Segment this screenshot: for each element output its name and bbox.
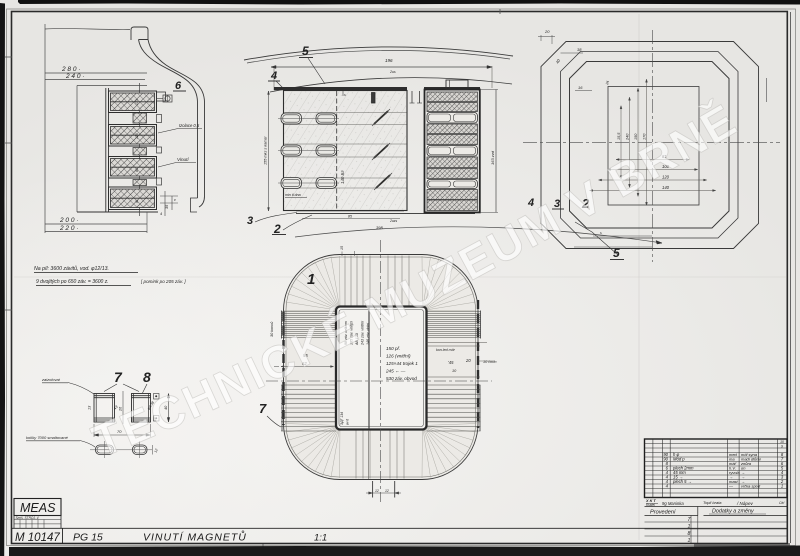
svg-text:8: 8: [688, 531, 691, 537]
svg-text:398: 398: [376, 225, 383, 230]
svg-text:Na píl: 3600 závitů, vod. φ12/: Na píl: 3600 závitů, vod. φ12/13.: [34, 265, 109, 272]
svg-text:155 mks s kamsí: 155 mks s kamsí: [264, 136, 268, 165]
svg-text:2uzs: 2uzs: [389, 219, 397, 223]
svg-text:/ Nápev: / Nápev: [736, 501, 754, 506]
svg-text:240: 240: [626, 133, 630, 141]
svg-text:16: 16: [578, 85, 583, 90]
svg-text:Dodatky a změny: Dodatky a změny: [712, 509, 754, 515]
svg-text:4: 4: [160, 212, 162, 216]
svg-text:ЭДГ 134: ЭДГ 134: [340, 412, 344, 425]
svg-text:1: 1: [307, 271, 315, 288]
svg-text:530 záv. obvod: 530 záv. obvod: [386, 376, 417, 381]
svg-text:15: 15: [340, 246, 344, 250]
svg-text:30 konců: 30 konců: [270, 321, 274, 337]
svg-text:9: 9: [781, 445, 783, 449]
svg-text:5: 5: [302, 44, 309, 58]
svg-text:M 10147: M 10147: [15, 532, 60, 544]
svg-text:Smíš. STROJ. 4: Smíš. STROJ. 4: [16, 516, 39, 520]
svg-text:víčka spod: víčka spod: [741, 484, 761, 489]
svg-text:196: 196: [385, 58, 393, 63]
svg-text:38: 38: [577, 47, 582, 52]
svg-text:85: 85: [135, 168, 139, 172]
svg-text:вч 6: вч 6: [346, 419, 350, 425]
svg-text:8: 8: [143, 369, 151, 385]
svg-text:9g Maninka: 9g Maninka: [662, 501, 684, 506]
svg-text:10 čmín: 10 čmín: [483, 360, 497, 364]
svg-text:Provedení: Provedení: [650, 510, 676, 516]
svg-text:10: 10: [780, 440, 784, 444]
svg-text:PG 15: PG 15: [73, 532, 103, 544]
svg-text:6: 6: [175, 80, 182, 92]
svg-text:kon.led mítr: kon.led mítr: [436, 348, 456, 352]
svg-text:85: 85: [348, 215, 352, 219]
svg-text:20: 20: [544, 29, 550, 34]
svg-text:1:1: 1:1: [314, 533, 327, 544]
svg-text:Vinutí: Vinutí: [177, 157, 189, 162]
svg-text:[ pomink po 205 záv. ]: [ pomink po 205 záv. ]: [140, 279, 186, 284]
svg-text:2 4 0 ·: 2 4 0 ·: [65, 73, 84, 80]
svg-text:Mód p: Mód p: [673, 457, 685, 462]
svg-text:Topil brata: Topil brata: [703, 500, 722, 505]
svg-text:Izolace 0,5: Izolace 0,5: [179, 123, 200, 128]
svg-text:125×44 trojek 1: 125×44 trojek 1: [386, 361, 418, 366]
svg-text:2 8 0 ·: 2 8 0 ·: [61, 66, 80, 73]
svg-text:245 ← —: 245 ← —: [385, 369, 406, 374]
svg-text:140 Бг: 140 Бг: [340, 170, 345, 184]
svg-text:1: 1: [781, 484, 783, 489]
svg-text:s: s: [600, 231, 602, 235]
svg-text:1: 1: [688, 524, 691, 530]
svg-text:Ctrl: Ctrl: [779, 501, 785, 505]
svg-text:1: 1: [688, 538, 691, 544]
svg-text:12: 12: [385, 489, 389, 493]
svg-text:plech 5 →: plech 5 →: [672, 479, 692, 484]
svg-text:2 0 0 ·: 2 0 0 ·: [59, 217, 78, 224]
svg-text:150: 150: [634, 133, 638, 140]
svg-text:20: 20: [465, 358, 471, 363]
svg-text:5: 5: [613, 246, 620, 260]
svg-text:41: 41: [135, 199, 139, 203]
svg-text:173: 173: [135, 99, 139, 105]
svg-text:12: 12: [375, 489, 379, 493]
svg-text:2 2 0 ·: 2 2 0 ·: [59, 225, 78, 232]
svg-text:3: 3: [247, 215, 253, 227]
svg-text:'45: '45: [448, 360, 454, 365]
svg-text:7: 7: [114, 369, 123, 385]
svg-text:c: c: [174, 197, 176, 202]
svg-text:150 př.: 150 př.: [386, 346, 400, 351]
svg-text:VINUTÍ MAGNETŮ: VINUTÍ MAGNETŮ: [143, 530, 247, 544]
svg-text:4: 4: [270, 70, 277, 82]
svg-text:9 dvojitých po 650 záv. = 3600: 9 dvojitých po 650 záv. = 3600 z.: [36, 279, 109, 285]
svg-text:2: 2: [273, 222, 281, 236]
svg-text:126 (vnitřní): 126 (vnitřní): [386, 354, 411, 359]
svg-text:15,5: 15,5: [617, 132, 621, 140]
svg-text:7: 7: [259, 401, 267, 416]
svg-text:2us: 2us: [389, 70, 396, 74]
svg-text:min tl.dna: min tl.dna: [285, 193, 301, 197]
svg-text:zaizolovat: zaizolovat: [41, 377, 61, 382]
svg-text:s: s: [344, 93, 346, 97]
svg-text:125: 125: [135, 133, 139, 139]
svg-text:MEAS: MEAS: [20, 501, 56, 515]
svg-text:kolíky 7000 smaltované: kolíky 7000 smaltované: [26, 435, 69, 440]
svg-text:163 zvd: 163 zvd: [490, 150, 495, 165]
